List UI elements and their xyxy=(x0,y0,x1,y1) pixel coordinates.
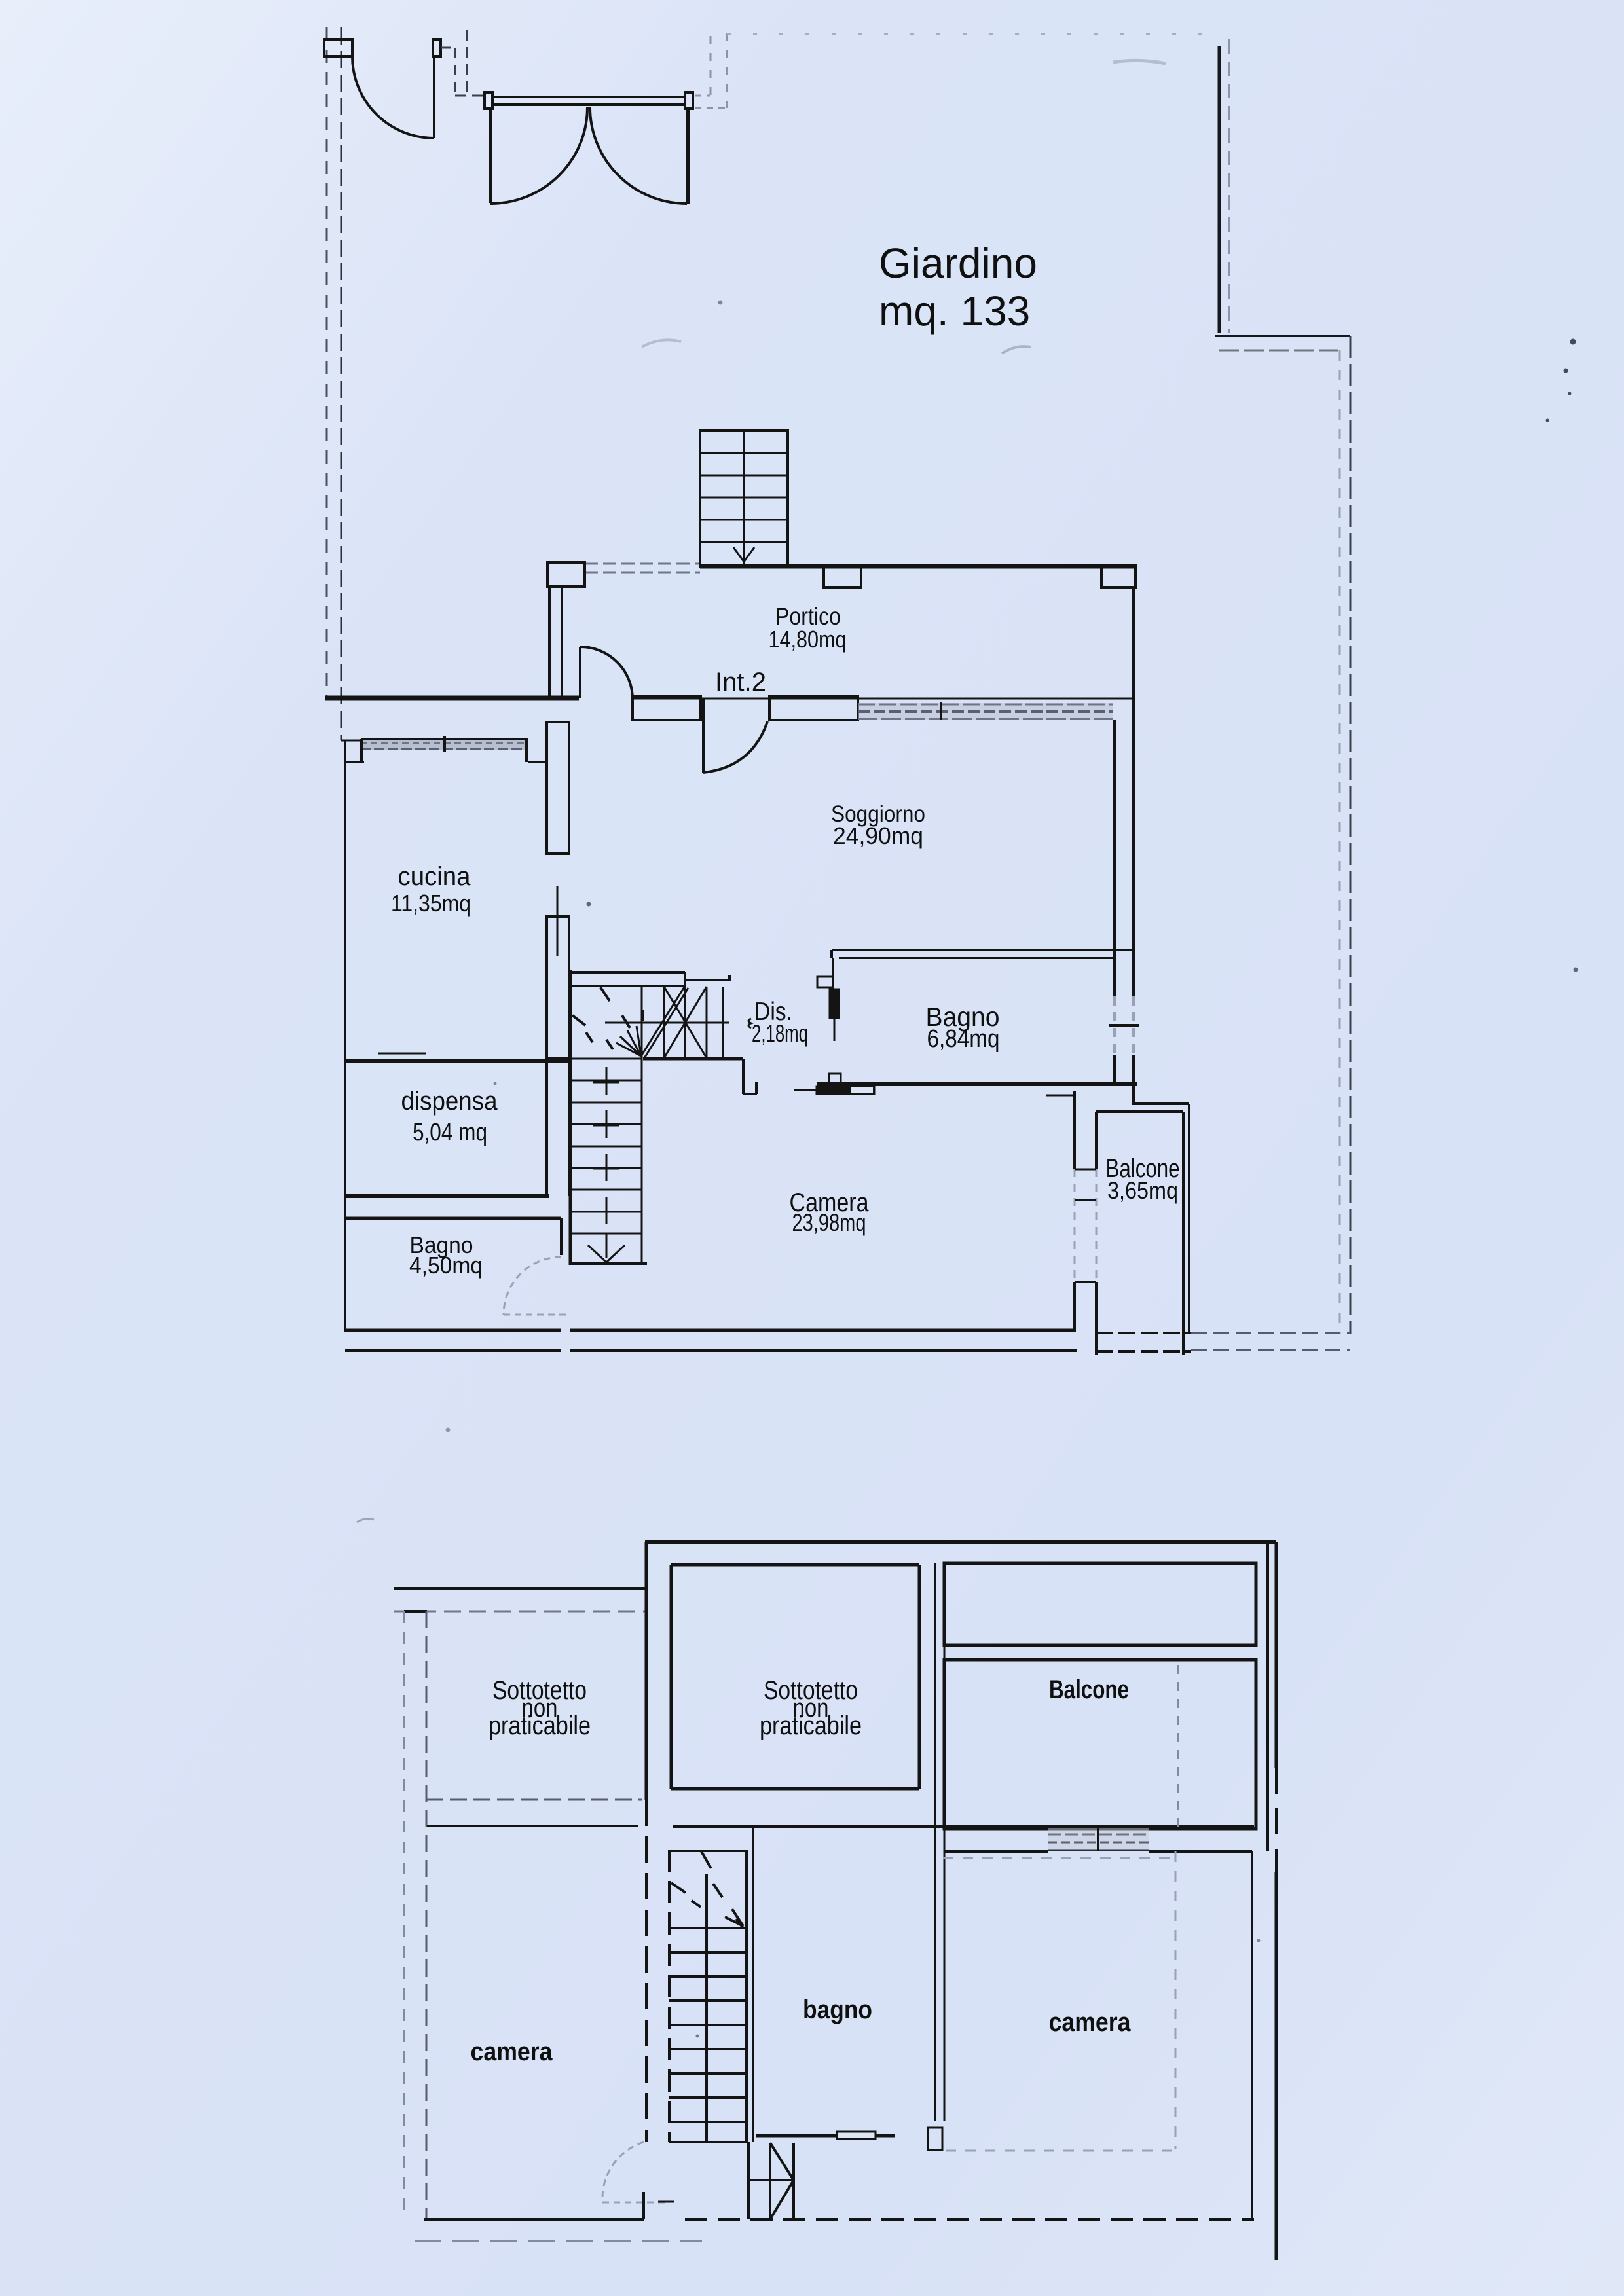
svg-text:23,98mq: 23,98mq xyxy=(792,1209,866,1236)
svg-text:11,35mq: 11,35mq xyxy=(391,890,471,917)
svg-text:Int.2: Int.2 xyxy=(715,668,766,697)
svg-text:24,90mq: 24,90mq xyxy=(833,822,923,849)
svg-text:camera: camera xyxy=(471,2037,553,2066)
svg-text:Balcone: Balcone xyxy=(1049,1675,1129,1704)
svg-text:praticabile: praticabile xyxy=(760,1711,862,1740)
svg-text:mq. 133: mq. 133 xyxy=(879,287,1030,335)
svg-text:3,65mq: 3,65mq xyxy=(1107,1177,1178,1204)
svg-text:camera: camera xyxy=(1049,2008,1132,2037)
svg-text:2,18mq: 2,18mq xyxy=(752,1020,808,1047)
svg-text:bagno: bagno xyxy=(803,1995,872,2024)
svg-text:Giardino: Giardino xyxy=(879,240,1037,287)
svg-text:14,80mq: 14,80mq xyxy=(769,626,847,653)
svg-text:6,84mq: 6,84mq xyxy=(927,1025,1000,1053)
svg-text:dispensa: dispensa xyxy=(401,1087,498,1116)
svg-text:4,50mq: 4,50mq xyxy=(409,1252,483,1279)
svg-text:praticabile: praticabile xyxy=(489,1711,591,1740)
svg-text:cucina: cucina xyxy=(398,862,471,891)
svg-text:5,04 mq: 5,04 mq xyxy=(413,1119,487,1146)
